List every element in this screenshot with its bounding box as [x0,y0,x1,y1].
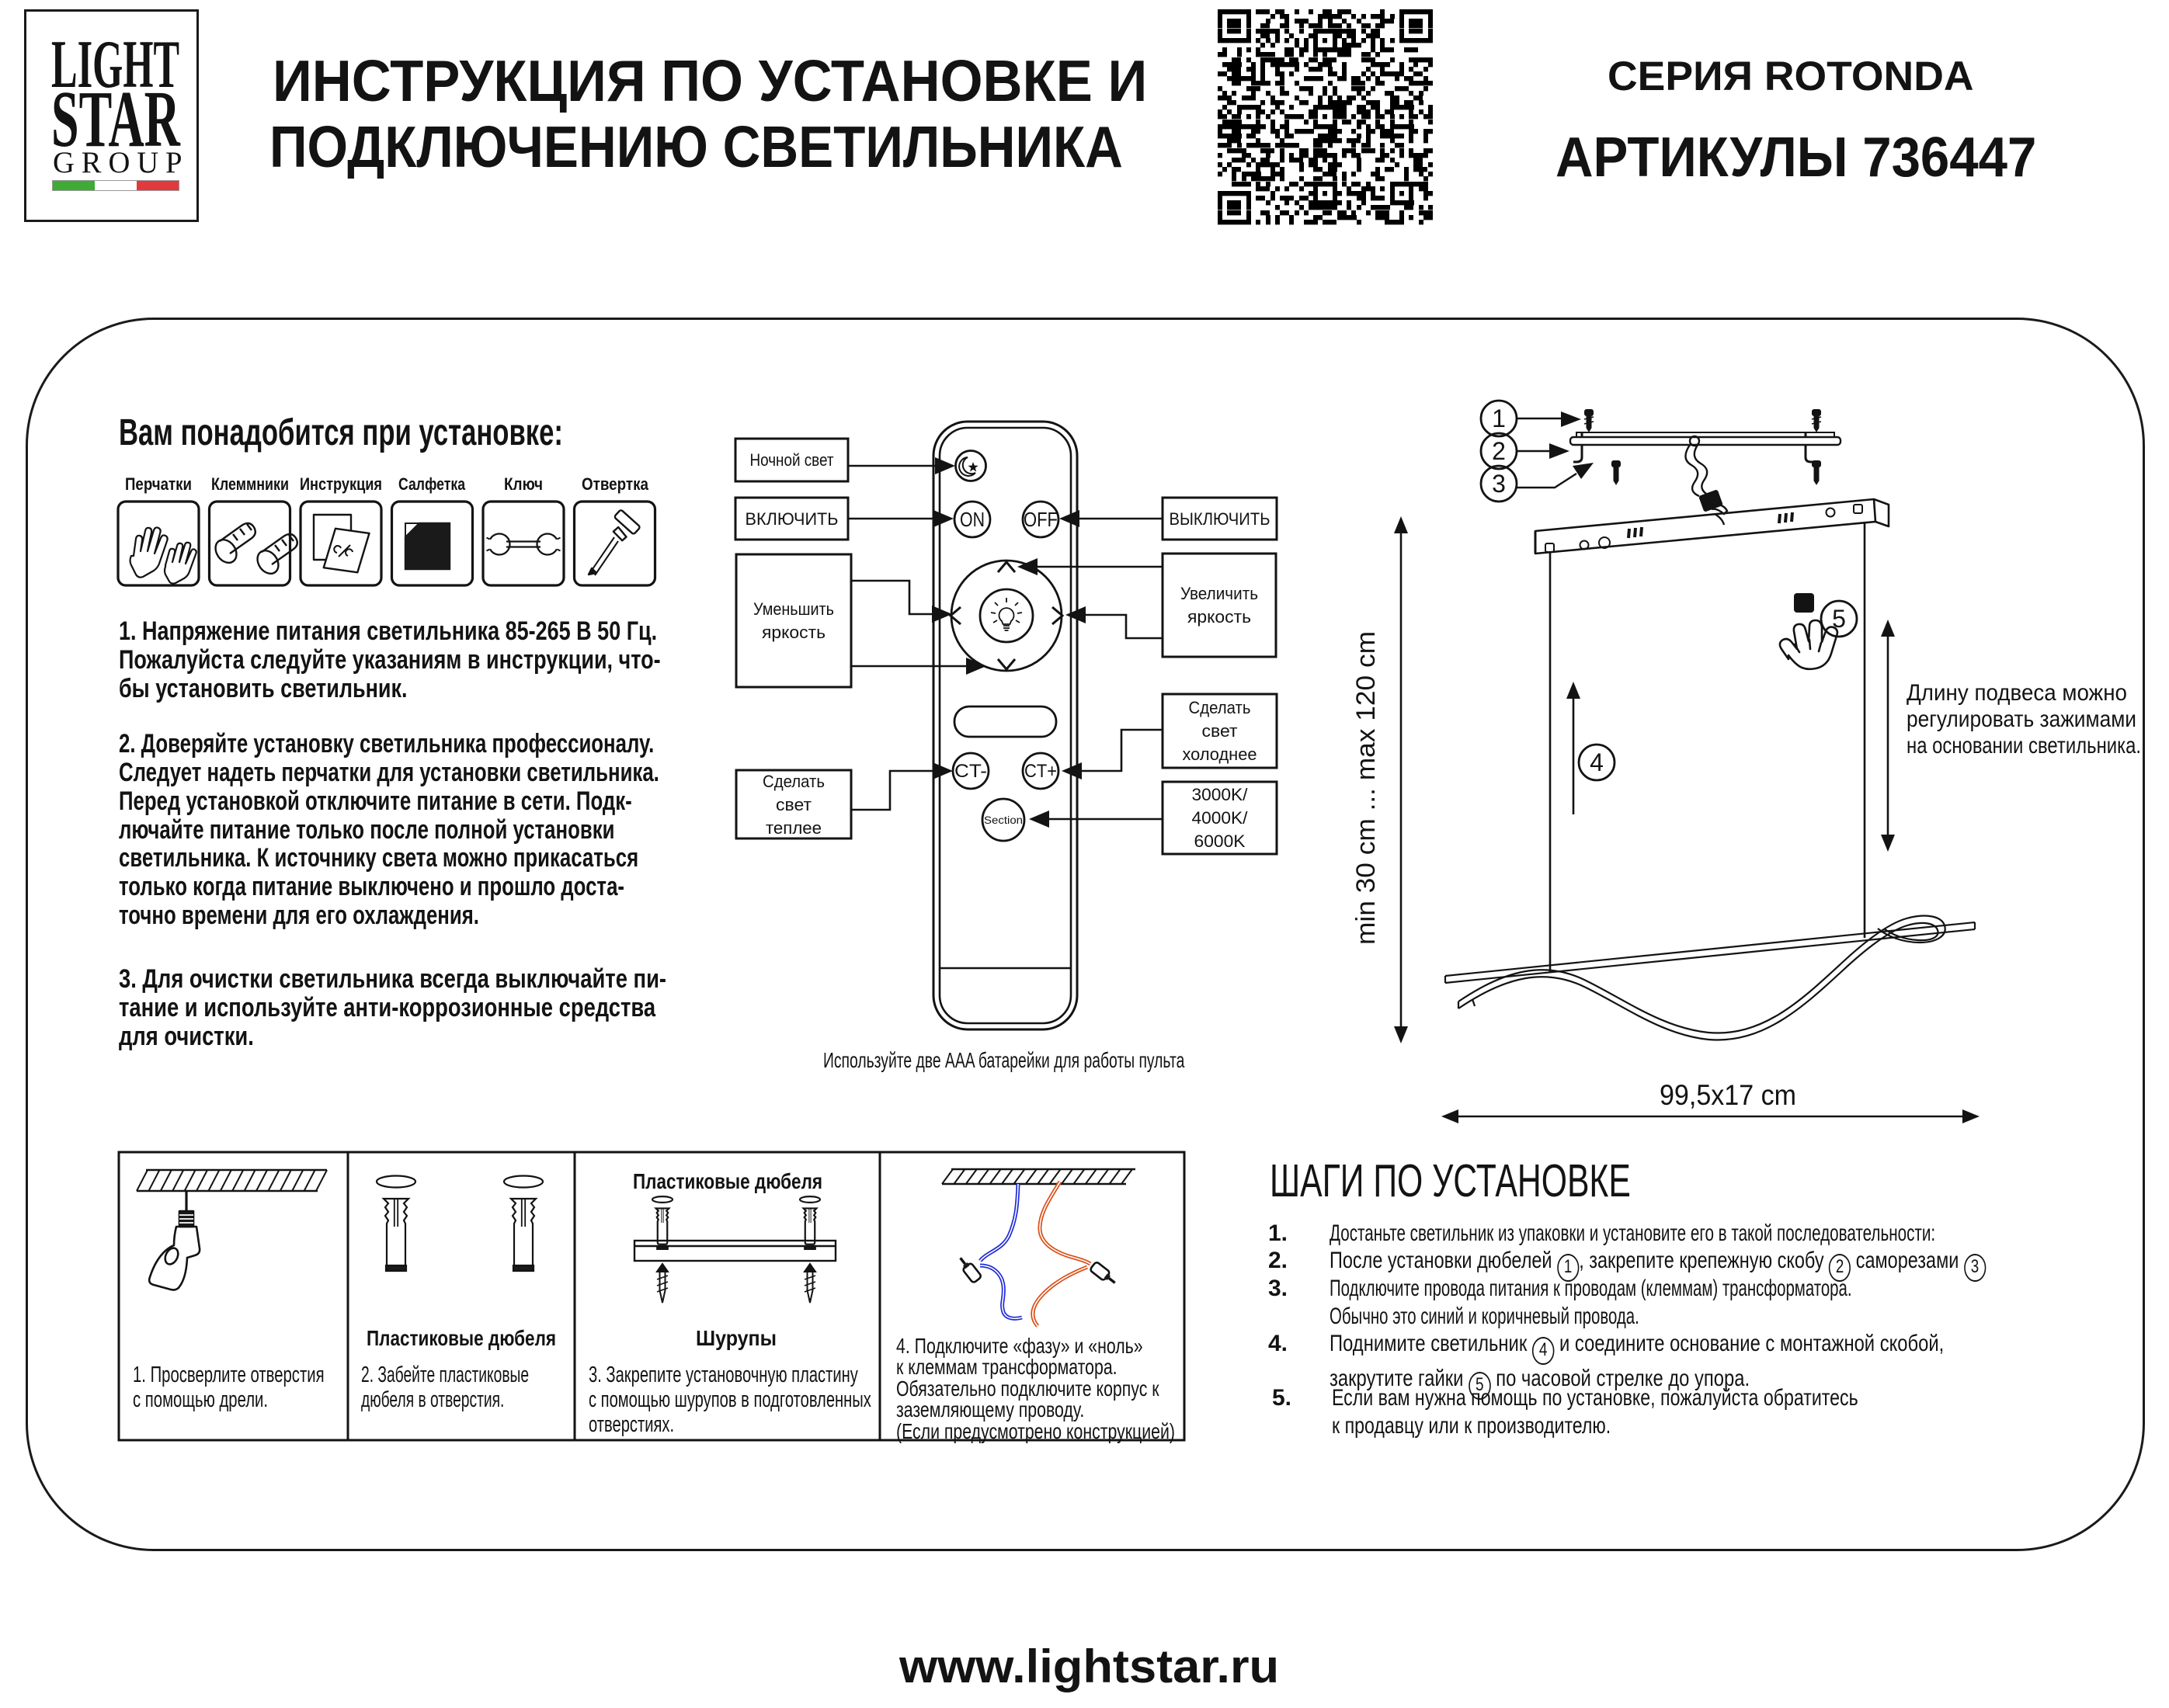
svg-text:яркость: яркость [762,623,826,642]
svg-text:Ключ: Ключ [504,474,543,494]
svg-text:CT-: CT- [954,761,987,782]
svg-text:Пластиковые дюбеля: Пластиковые дюбеля [367,1326,556,1350]
svg-text:ВЫКЛЮЧИТЬ: ВЫКЛЮЧИТЬ [1170,509,1270,529]
svg-text:Сделать: Сделать [763,772,825,791]
svg-text:Салфетка: Салфетка [398,474,466,494]
svg-text:ВКЛЮЧИТЬ: ВКЛЮЧИТЬ [746,509,839,529]
svg-text:свет: свет [776,795,812,814]
svg-text:на основании светильника.: на основании светильника. [1907,733,2141,759]
svg-text:99,5x17 cm: 99,5x17 cm [1660,1079,1796,1111]
svg-text:CT+: CT+ [1024,761,1057,782]
svg-text:Перчатки: Перчатки [125,474,192,494]
svg-text:яркость: яркость [1187,607,1251,627]
svg-text:Уменьшить: Уменьшить [753,599,834,619]
svg-text:Section: Section [984,814,1023,826]
svg-text:min 30 cm ... max 120 cm: min 30 cm ... max 120 cm [1351,631,1381,945]
svg-text:свет: свет [1202,721,1238,741]
svg-text:теплее: теплее [766,818,822,838]
svg-text:4000K/: 4000K/ [1192,808,1249,828]
svg-text:ON: ON [960,508,985,531]
svg-text:регулировать зажимами: регулировать зажимами [1907,706,2136,732]
svg-text:холоднее: холоднее [1183,745,1257,764]
svg-text:5: 5 [1832,605,1846,633]
svg-text:1: 1 [1492,404,1506,432]
svg-text:3000K/: 3000K/ [1192,785,1249,804]
svg-text:Ночной свет: Ночной свет [750,450,834,470]
svg-text:3: 3 [1492,470,1506,498]
svg-text:4: 4 [1590,748,1604,776]
svg-text:2: 2 [1492,437,1506,465]
svg-text:Шурупы: Шурупы [696,1326,777,1350]
svg-text:Увеличить: Увеличить [1180,584,1258,603]
svg-text:Длину подвеса можно: Длину подвеса можно [1907,680,2127,706]
svg-text:Сделать: Сделать [1189,698,1251,717]
svg-text:OFF: OFF [1024,508,1058,531]
svg-text:6000K: 6000K [1194,831,1246,851]
svg-text:Отвертка: Отвертка [582,474,649,494]
svg-text:Клеммники: Клеммники [211,474,289,494]
svg-text:Пластиковые дюбеля: Пластиковые дюбеля [633,1169,822,1193]
svg-text:Инструкция: Инструкция [300,474,382,494]
